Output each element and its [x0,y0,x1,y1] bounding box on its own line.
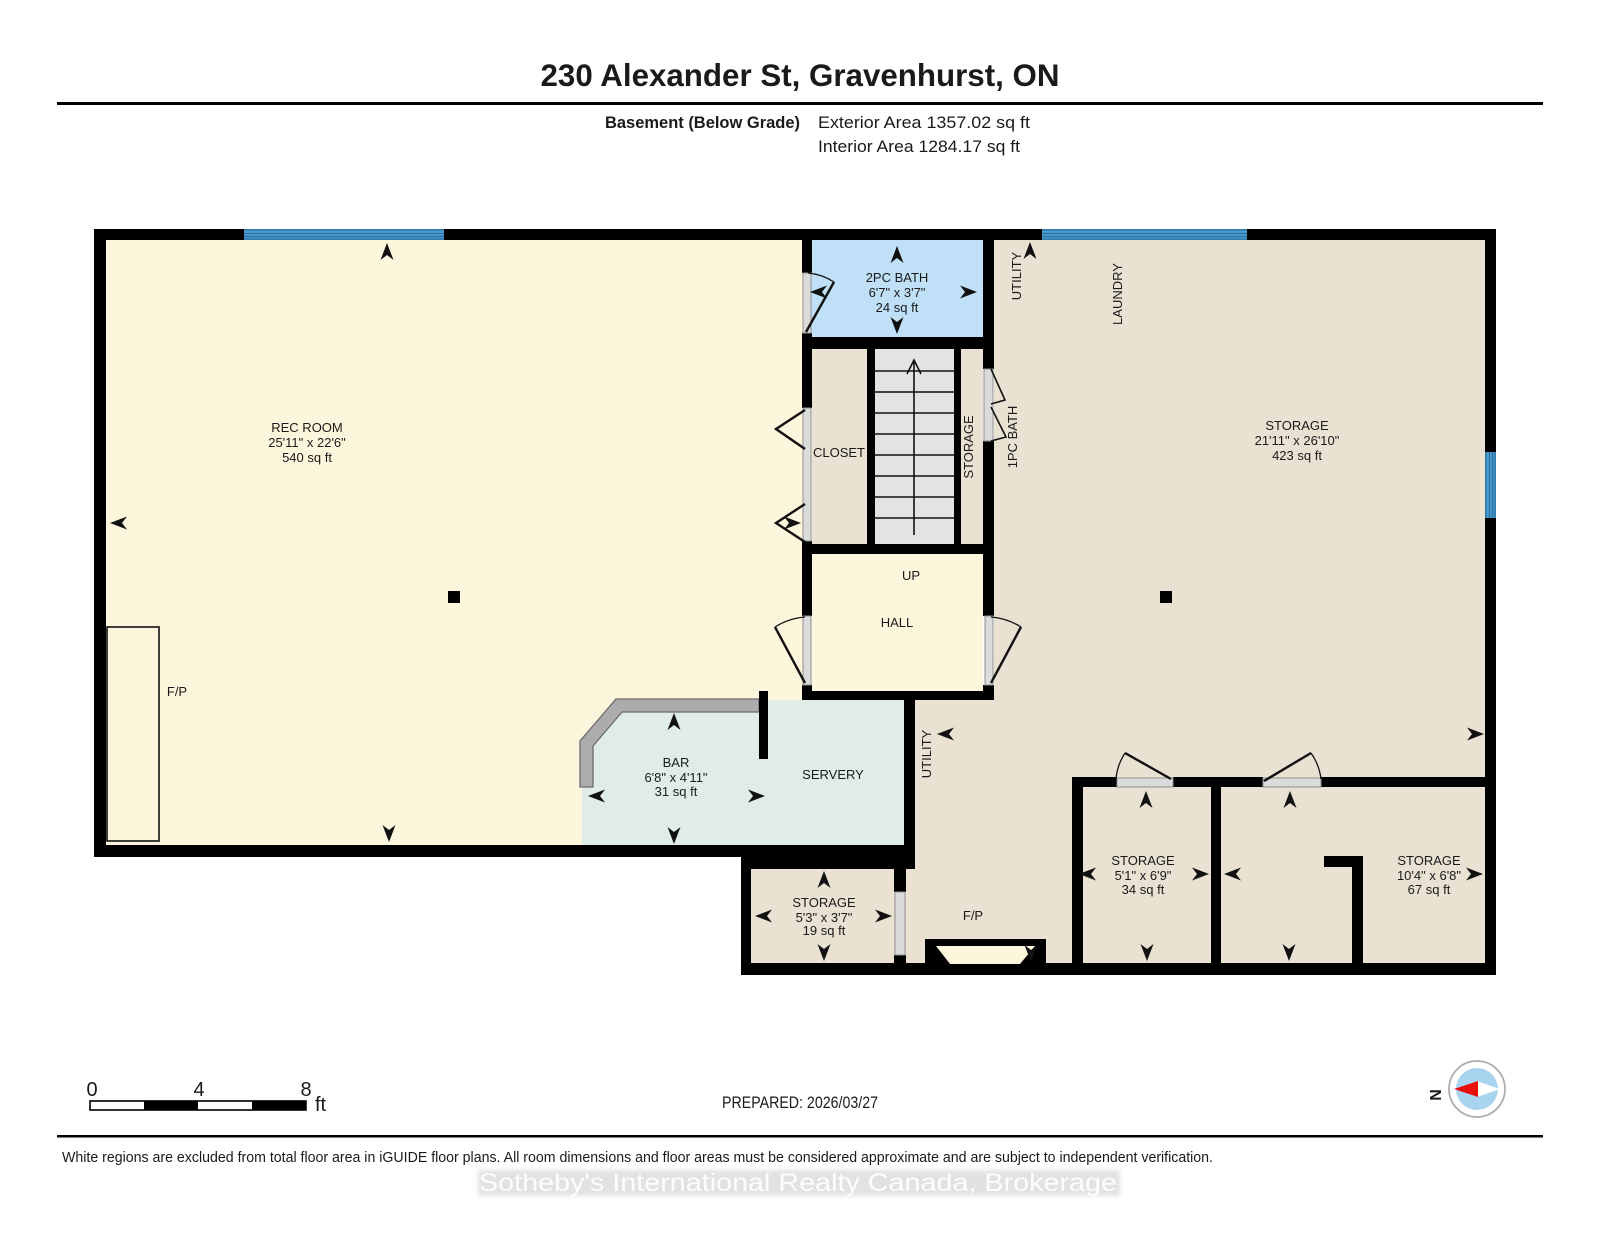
svg-text:230 Alexander St, Gravenhurst,: 230 Alexander St, Gravenhurst, ON [541,57,1060,93]
svg-text:34 sq ft: 34 sq ft [1122,882,1165,897]
svg-text:CLOSET: CLOSET [813,445,865,460]
svg-text:5'1" x 6'9": 5'1" x 6'9" [1115,868,1172,883]
svg-text:Basement (Below Grade): Basement (Below Grade) [605,113,800,132]
svg-text:STORAGE: STORAGE [961,415,976,479]
svg-text:UP: UP [902,568,920,583]
svg-text:UTILITY: UTILITY [919,729,934,778]
svg-text:PREPARED: 2026/03/27: PREPARED: 2026/03/27 [722,1094,878,1112]
svg-text:6'8" x 4'11": 6'8" x 4'11" [644,770,707,785]
svg-text:24 sq ft: 24 sq ft [876,300,919,315]
svg-text:SERVERY: SERVERY [802,767,864,782]
svg-text:BAR: BAR [663,755,690,770]
svg-text:1PC BATH: 1PC BATH [1005,406,1020,469]
svg-text:F/P: F/P [167,684,187,699]
svg-text:STORAGE: STORAGE [792,895,856,910]
svg-text:4: 4 [193,1079,204,1101]
svg-text:White regions are excluded fro: White regions are excluded from total fl… [62,1149,1213,1166]
svg-text:0: 0 [86,1079,97,1101]
svg-text:6'7" x 3'7": 6'7" x 3'7" [869,285,926,300]
svg-text:67 sq ft: 67 sq ft [1408,882,1451,897]
svg-text:Interior Area 1284.17 sq ft: Interior Area 1284.17 sq ft [818,137,1020,156]
svg-text:ft: ft [315,1094,327,1116]
svg-text:LAUNDRY: LAUNDRY [1110,263,1125,325]
svg-text:21'11" x 26'10": 21'11" x 26'10" [1255,433,1340,448]
svg-text:Sotheby's International Realty: Sotheby's International Realty Canada, B… [479,1169,1117,1197]
svg-text:423 sq ft: 423 sq ft [1272,448,1322,463]
svg-text:N: N [1428,1089,1445,1101]
svg-text:2PC BATH: 2PC BATH [866,270,929,285]
svg-text:8: 8 [300,1079,311,1101]
svg-text:UTILITY: UTILITY [1009,251,1024,300]
svg-text:Exterior Area 1357.02 sq ft: Exterior Area 1357.02 sq ft [818,113,1030,132]
svg-text:HALL: HALL [881,615,914,630]
svg-text:25'11" x 22'6": 25'11" x 22'6" [268,435,346,450]
svg-text:F/P: F/P [963,908,983,923]
svg-text:STORAGE: STORAGE [1111,853,1175,868]
svg-text:REC ROOM: REC ROOM [271,420,343,435]
svg-text:STORAGE: STORAGE [1397,853,1461,868]
svg-text:10'4" x 6'8": 10'4" x 6'8" [1397,868,1461,883]
svg-text:STORAGE: STORAGE [1265,418,1329,433]
svg-text:540 sq ft: 540 sq ft [282,450,332,465]
svg-text:19 sq ft: 19 sq ft [803,923,846,938]
svg-text:31 sq ft: 31 sq ft [655,784,698,799]
